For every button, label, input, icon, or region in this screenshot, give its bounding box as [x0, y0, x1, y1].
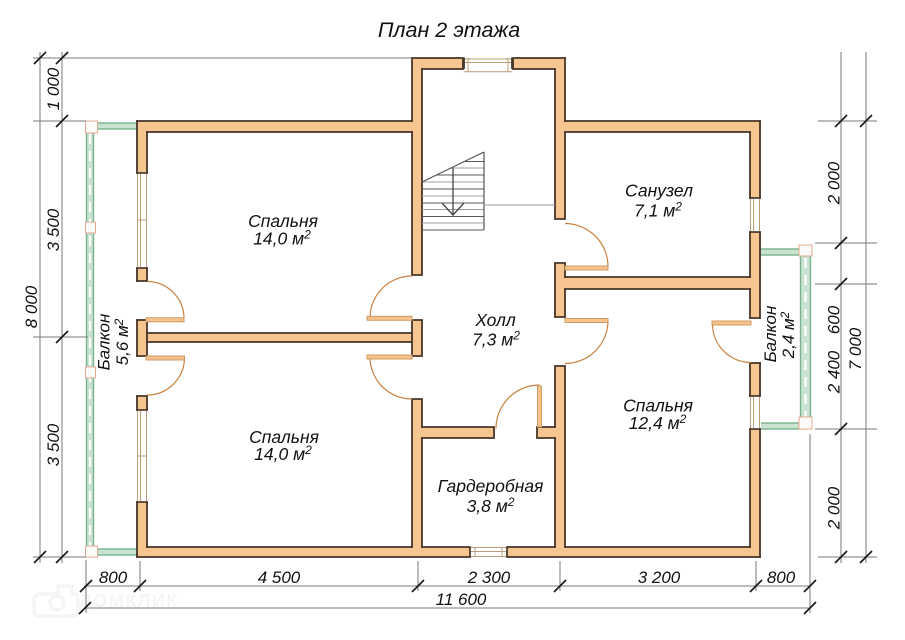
svg-text:4 500: 4 500 [258, 568, 301, 587]
svg-text:3 500: 3 500 [44, 423, 63, 466]
svg-text:3 200: 3 200 [638, 568, 681, 587]
svg-text:7,3 м2: 7,3 м2 [472, 329, 520, 350]
svg-text:7 000: 7 000 [846, 327, 865, 370]
svg-text:800: 800 [767, 568, 796, 587]
svg-text:14,0 м2: 14,0 м2 [254, 443, 312, 464]
svg-text:Санузел: Санузел [625, 181, 693, 201]
svg-text:Балкон: Балкон [94, 313, 113, 370]
svg-text:2,4 м2: 2,4 м2 [778, 311, 798, 359]
svg-text:Гардеробная: Гардеробная [438, 476, 544, 496]
svg-text:3,8 м2: 3,8 м2 [467, 495, 515, 516]
svg-text:2 000: 2 000 [825, 161, 844, 205]
svg-text:5,6 м2: 5,6 м2 [112, 318, 132, 365]
svg-text:14,0 м2: 14,0 м2 [253, 228, 311, 249]
svg-text:600: 600 [825, 305, 844, 334]
svg-text:3 500: 3 500 [44, 208, 63, 251]
svg-text:1 000: 1 000 [44, 67, 63, 110]
svg-text:12,4 м2: 12,4 м2 [629, 412, 687, 433]
svg-text:800: 800 [99, 568, 128, 587]
svg-text:11 600: 11 600 [436, 590, 487, 609]
svg-text:7,1 м2: 7,1 м2 [634, 200, 682, 221]
svg-text:2 400: 2 400 [825, 350, 844, 394]
svg-text:План 2 этажа: План 2 этажа [378, 18, 520, 42]
svg-text:8 000: 8 000 [22, 285, 41, 328]
svg-text:2 300: 2 300 [467, 568, 511, 587]
svg-text:2 000: 2 000 [825, 486, 844, 530]
svg-text:Холл: Холл [474, 310, 516, 330]
